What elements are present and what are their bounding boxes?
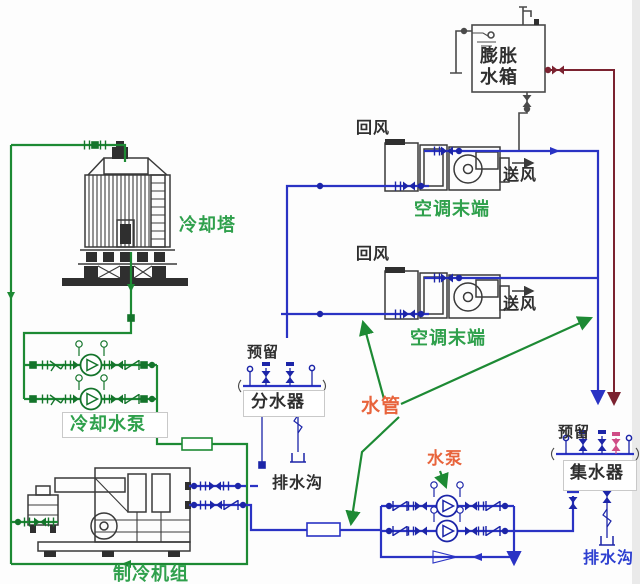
hvac-schematic-diagram: 冷却塔 冷却水泵 制冷机组 空调末端 空调末端 膨胀 水箱 回风 回风 送风 送… bbox=[0, 0, 640, 584]
pump-icon bbox=[437, 496, 458, 517]
scan-edge-band bbox=[632, 0, 640, 584]
flow-arrow-icon bbox=[7, 292, 15, 300]
flow-arrow-icon bbox=[472, 553, 482, 561]
flow-arrow-icon bbox=[127, 284, 135, 292]
cooling-pump-row-2 bbox=[29, 375, 155, 410]
collector-drain bbox=[599, 488, 615, 545]
cooling-water-pump-label: 冷却水泵 bbox=[70, 415, 146, 434]
chilled-pump-row-1 bbox=[386, 482, 508, 517]
supply-air-1-label: 送风 bbox=[503, 168, 537, 185]
chiller-drawing bbox=[28, 468, 191, 557]
reserved-pink-valve bbox=[612, 432, 621, 454]
pump-icon bbox=[437, 521, 458, 542]
ahu-2-label: 空调末端 bbox=[410, 329, 486, 348]
reserved-right-label: 预留 bbox=[558, 425, 590, 441]
piping-canvas bbox=[0, 0, 640, 584]
flex-connector bbox=[182, 438, 212, 450]
expansion-tank-label-line2: 水箱 bbox=[480, 68, 518, 87]
reserved-left-label: 预留 bbox=[247, 345, 279, 361]
chiller-unit-label: 制冷机组 bbox=[113, 565, 189, 584]
drain-right-label: 排水沟 bbox=[583, 551, 634, 568]
collector-label: 集水器 bbox=[570, 464, 624, 482]
pump-icon bbox=[81, 355, 102, 376]
faucet-icon bbox=[519, 7, 531, 25]
annotation-leaders bbox=[351, 318, 591, 524]
flex-connector bbox=[307, 523, 340, 536]
pump-icon bbox=[81, 389, 102, 410]
cooling-tower-drawing bbox=[62, 141, 188, 286]
tower-base-pad bbox=[62, 278, 188, 286]
float-valve-icon bbox=[488, 32, 494, 38]
return-air-1-label: 回风 bbox=[356, 121, 390, 138]
water-pipe-label: 水管 bbox=[361, 397, 401, 417]
distributor-label: 分水器 bbox=[251, 393, 305, 411]
supply-air-2-label: 送风 bbox=[503, 297, 537, 314]
tower-ladder bbox=[151, 175, 165, 247]
expansion-pipe bbox=[545, 66, 614, 405]
cooling-tower-label: 冷却塔 bbox=[179, 216, 236, 235]
return-air-2-label: 回风 bbox=[356, 247, 390, 264]
tower-louvers bbox=[89, 175, 149, 247]
expansion-tank-label-line1: 膨胀 bbox=[480, 47, 518, 66]
cooling-pump-row-1 bbox=[29, 341, 155, 376]
drain-left-label: 排水沟 bbox=[272, 476, 323, 493]
ahu-1-label: 空调末端 bbox=[414, 200, 490, 219]
chilled-water-pump-label: 水泵 bbox=[427, 450, 463, 468]
flow-arrow-icon bbox=[550, 147, 560, 155]
pump-label-arrow bbox=[440, 471, 446, 487]
